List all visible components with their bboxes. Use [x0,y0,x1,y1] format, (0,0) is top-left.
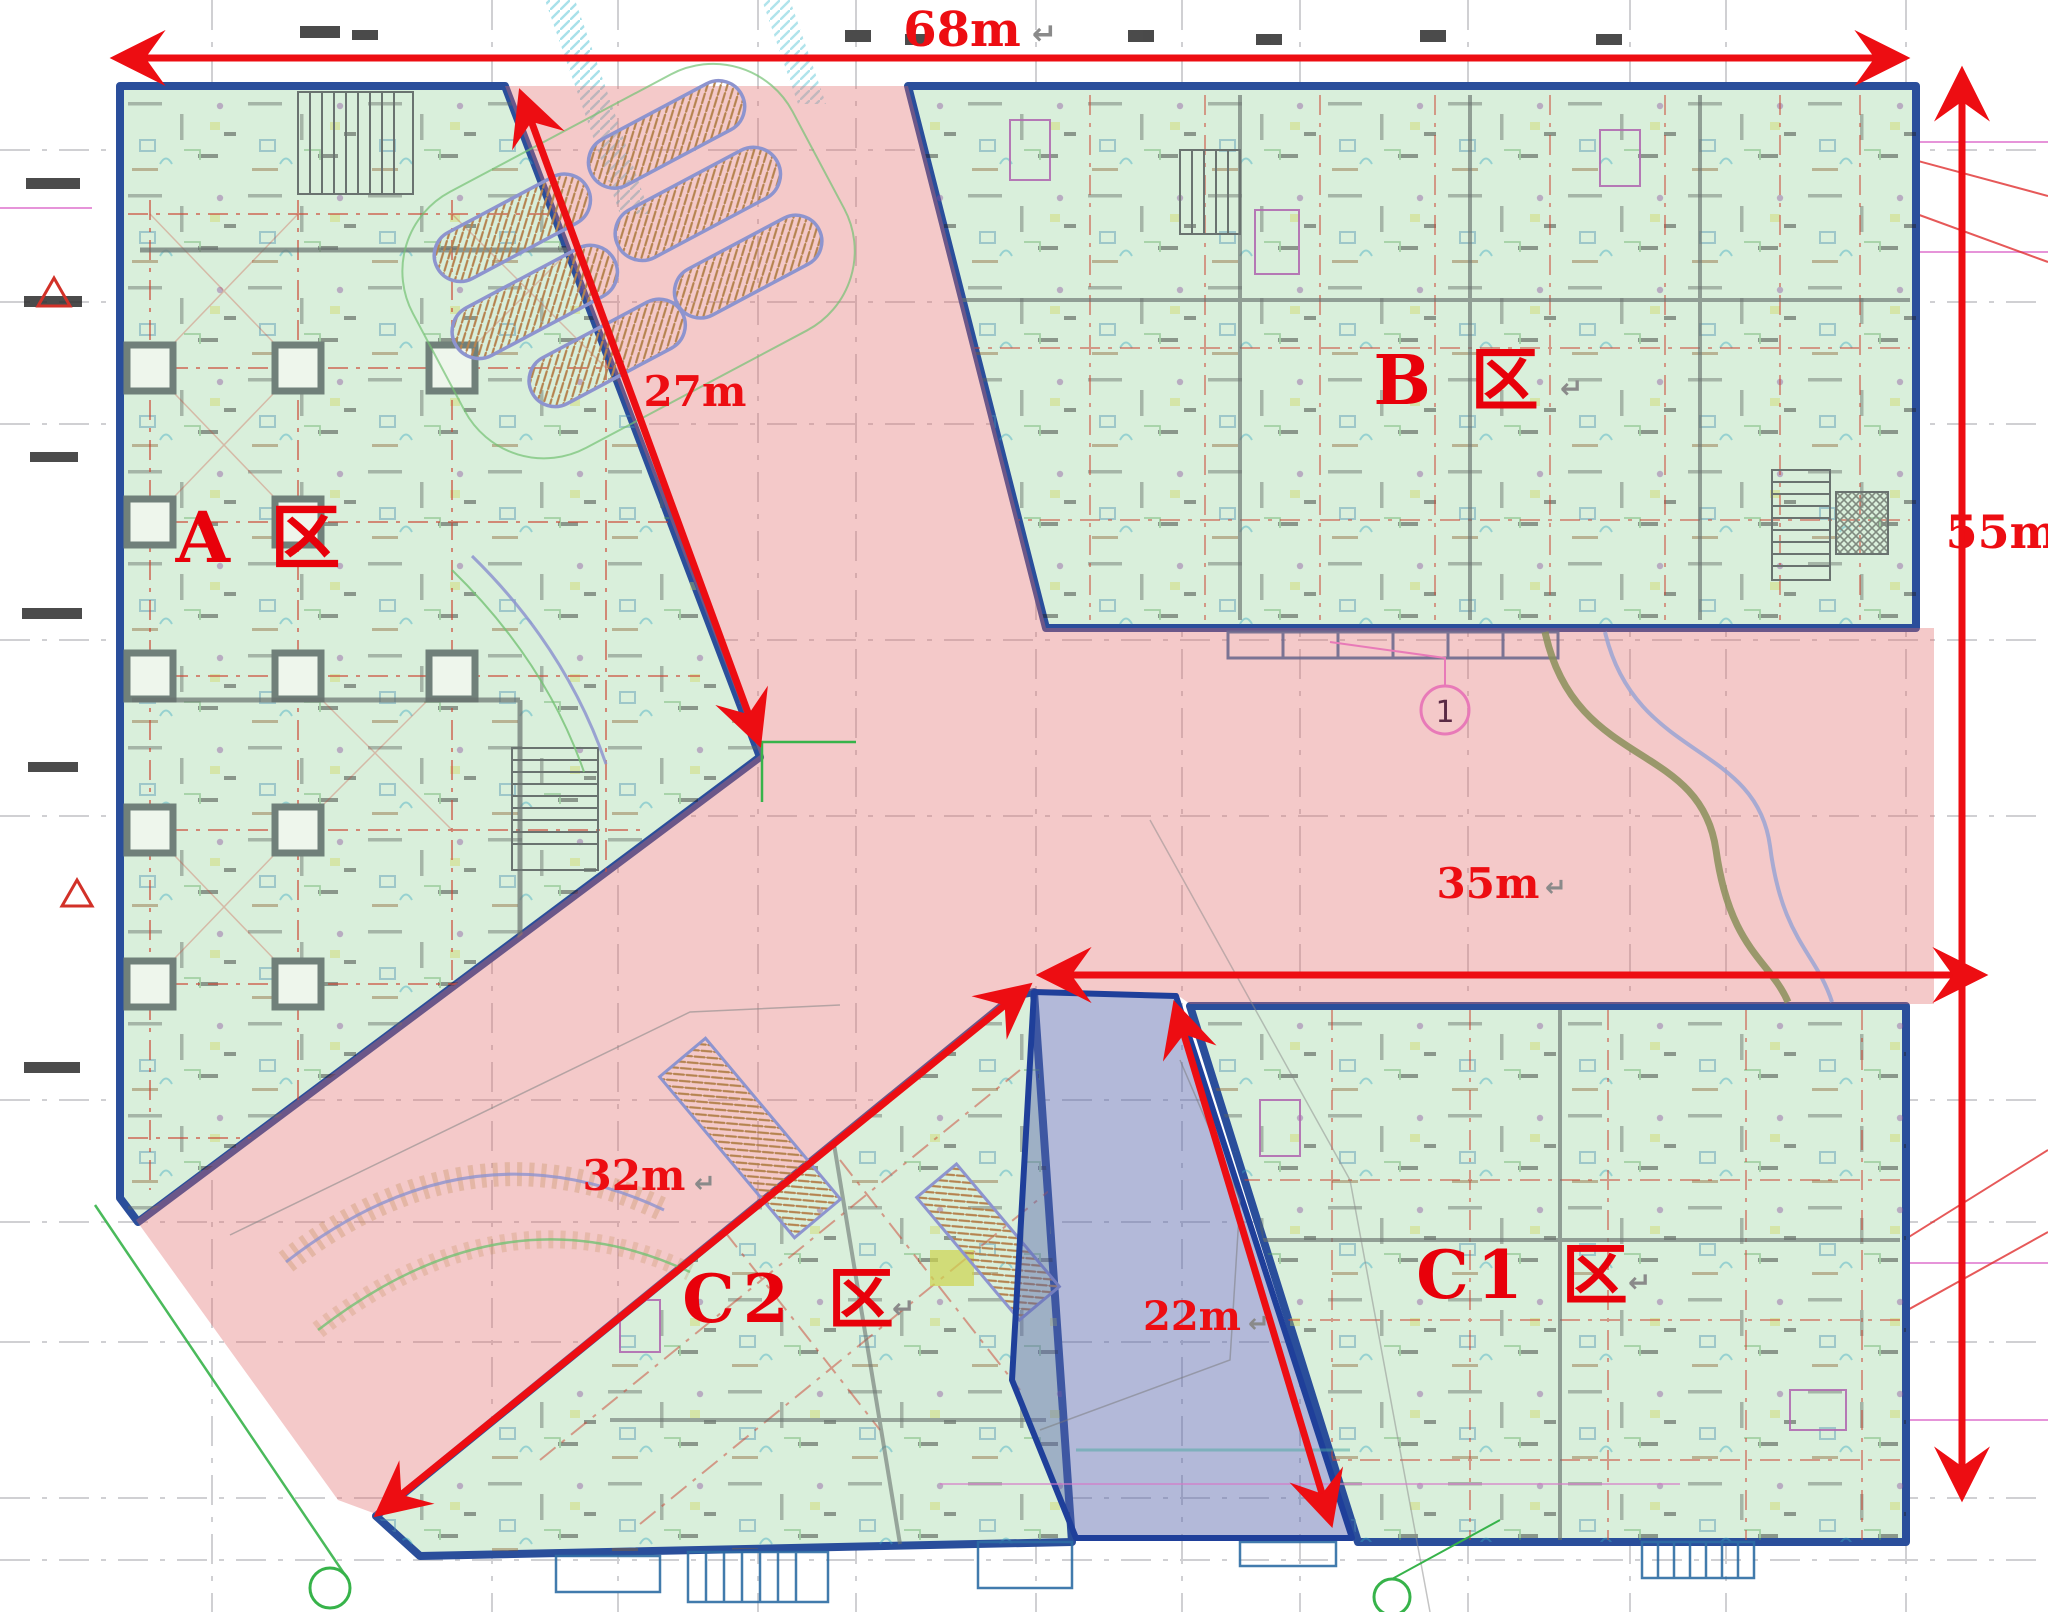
zone-label-a: A 区 [175,496,349,579]
dim-label-32m: 32m [583,1151,686,1200]
floor-plan-page: 1 68m ↵ 55m 27m 35m ↵ 32m ↵ 22m ↵ A 区 B … [0,0,2048,1612]
zone-label-c2: C2 区 [682,1260,901,1338]
floor-plan-drawing: 1 68m ↵ 55m 27m 35m ↵ 32m ↵ 22m ↵ A 区 B … [0,0,2048,1612]
zone-label-b: B 区 [1373,341,1546,421]
svg-text:1: 1 [1435,695,1454,730]
svg-text:↵: ↵ [892,1292,915,1325]
svg-text:↵: ↵ [694,1169,716,1199]
dim-label-22m: 22m [1143,1293,1241,1340]
zone-label-c1: C1 区 [1416,1236,1635,1314]
svg-text:↵: ↵ [1545,873,1567,903]
dim-label-55m: 55m [1946,505,2048,559]
dim-label-27m: 27m [644,367,747,416]
warning-triangle-icon [38,278,92,906]
svg-text:↵: ↵ [1628,1266,1651,1299]
dim-label-35m: 35m [1437,859,1540,908]
svg-text:↵: ↵ [1248,1309,1270,1339]
svg-text:↵: ↵ [1032,17,1057,52]
svg-text:↵: ↵ [1560,372,1583,405]
dim-label-68m: 68m [903,2,1021,58]
